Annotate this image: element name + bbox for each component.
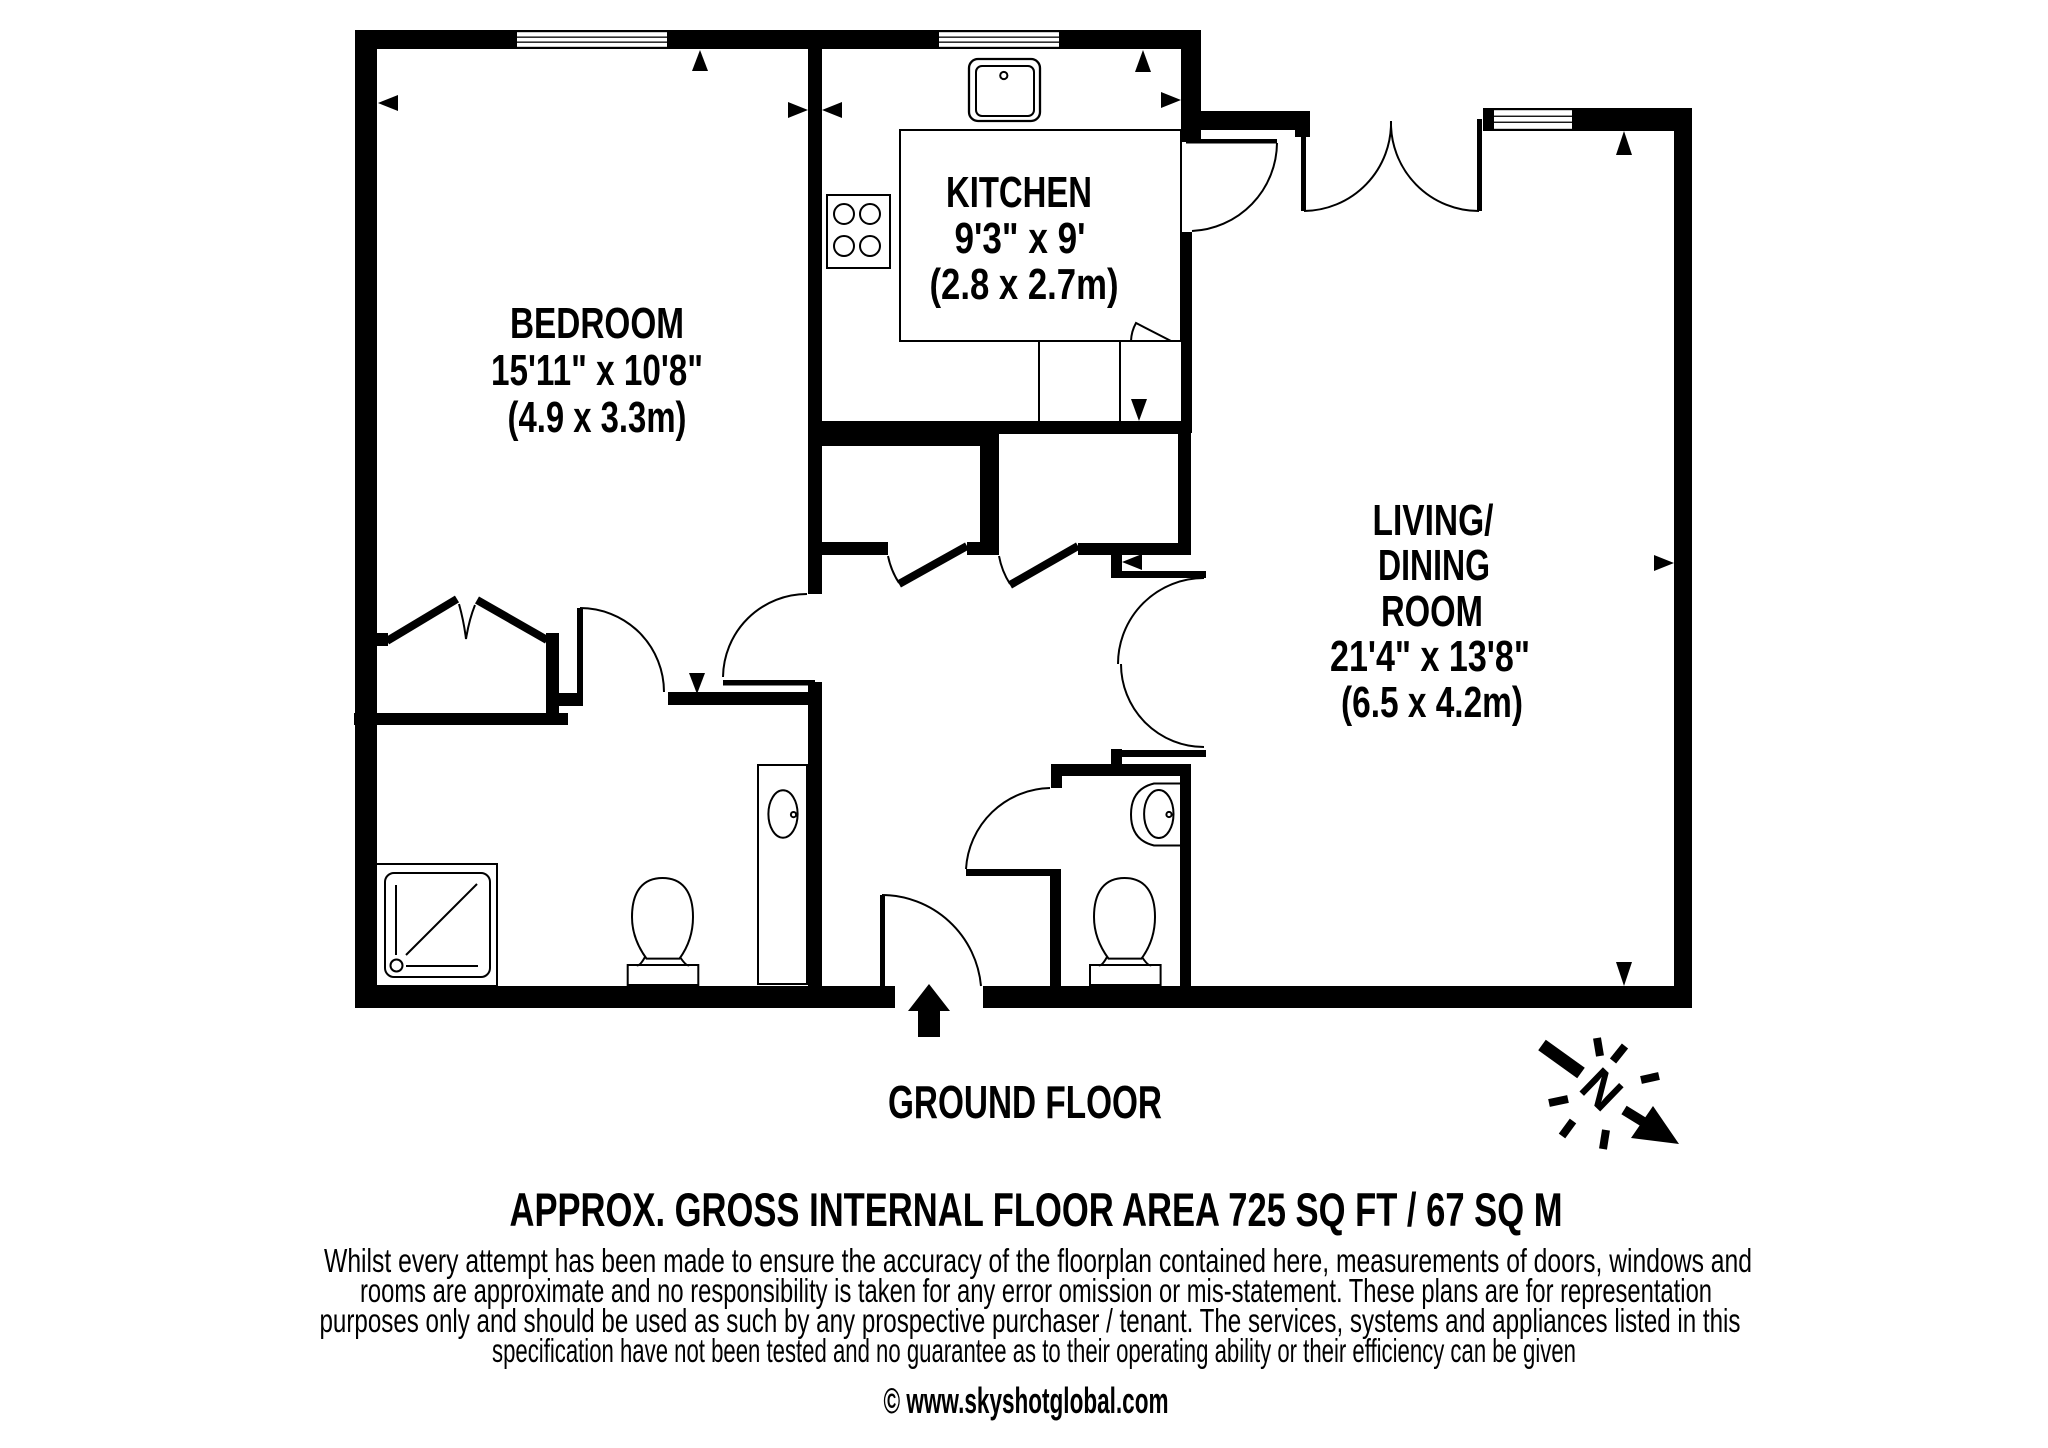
svg-text:BEDROOM: BEDROOM xyxy=(510,299,684,348)
svg-text:LIVING/: LIVING/ xyxy=(1373,496,1494,545)
svg-text:9'3" x 9': 9'3" x 9' xyxy=(955,214,1086,263)
svg-text:(4.9 x 3.3m): (4.9 x 3.3m) xyxy=(508,393,687,442)
svg-text:15'11" x 10'8": 15'11" x 10'8" xyxy=(491,346,703,395)
svg-text:DINING: DINING xyxy=(1378,541,1490,590)
svg-text:ROOM: ROOM xyxy=(1381,587,1483,636)
svg-text:(2.8 x 2.7m): (2.8 x 2.7m) xyxy=(930,260,1119,309)
svg-text:KITCHEN: KITCHEN xyxy=(946,168,1092,217)
svg-text:specification have not been te: specification have not been tested and n… xyxy=(492,1332,1576,1369)
svg-text:© www.skyshotglobal.com: © www.skyshotglobal.com xyxy=(884,1380,1169,1421)
svg-text:APPROX. GROSS INTERNAL FLOOR A: APPROX. GROSS INTERNAL FLOOR AREA 725 SQ… xyxy=(510,1183,1563,1236)
svg-text:21'4" x 13'8": 21'4" x 13'8" xyxy=(1330,632,1530,681)
svg-text:GROUND FLOOR: GROUND FLOOR xyxy=(888,1076,1162,1128)
svg-text:(6.5 x 4.2m): (6.5 x 4.2m) xyxy=(1341,678,1523,727)
